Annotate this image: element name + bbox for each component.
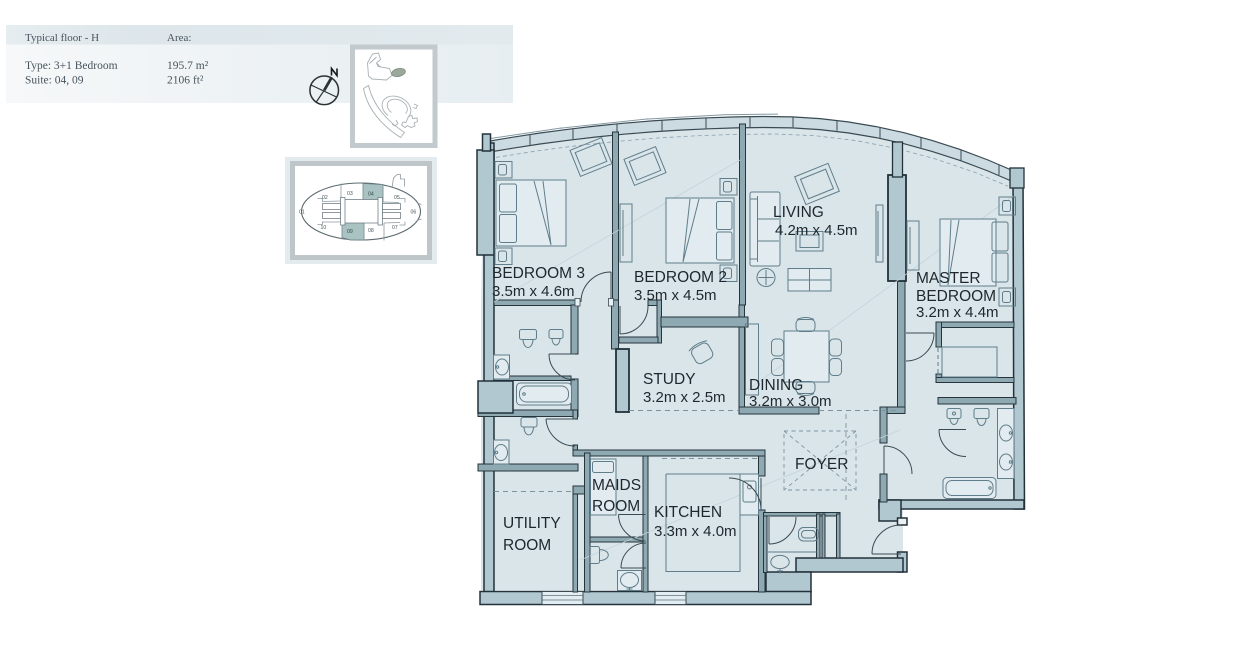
svg-text:04: 04 xyxy=(368,192,374,198)
svg-text:06: 06 xyxy=(411,210,417,216)
svg-text:LIVING: LIVING xyxy=(773,204,824,221)
svg-text:4.2m x 4.5m: 4.2m x 4.5m xyxy=(775,222,858,239)
svg-text:Area:: Area: xyxy=(167,32,191,44)
svg-text:3.2m x 4.4m: 3.2m x 4.4m xyxy=(916,304,999,321)
svg-text:BEDROOM 2: BEDROOM 2 xyxy=(634,269,727,286)
svg-text:Type: 3+1 Bedroom: Type: 3+1 Bedroom xyxy=(25,60,118,72)
svg-text:02: 02 xyxy=(322,195,328,201)
svg-text:MASTER: MASTER xyxy=(916,270,981,287)
svg-text:3.2m x 3.0m: 3.2m x 3.0m xyxy=(749,393,832,410)
svg-text:Typical floor - H: Typical floor - H xyxy=(25,32,99,44)
svg-text:3.2m x 2.5m: 3.2m x 2.5m xyxy=(643,389,726,406)
svg-text:2106 ft²: 2106 ft² xyxy=(167,75,204,87)
svg-text:3.5m x 4.5m: 3.5m x 4.5m xyxy=(634,287,717,304)
svg-text:08: 08 xyxy=(368,228,374,234)
svg-text:10: 10 xyxy=(321,225,327,231)
svg-text:195.7 m²: 195.7 m² xyxy=(167,60,209,72)
svg-text:UTILITY: UTILITY xyxy=(503,515,561,532)
svg-text:Suite: 04, 09: Suite: 04, 09 xyxy=(25,75,84,87)
svg-text:3.5m x 4.6m: 3.5m x 4.6m xyxy=(492,283,575,300)
svg-text:3.3m x 4.0m: 3.3m x 4.0m xyxy=(654,523,737,540)
svg-text:07: 07 xyxy=(392,225,398,231)
svg-text:BEDROOM: BEDROOM xyxy=(916,288,996,305)
svg-text:ROOM: ROOM xyxy=(592,498,640,515)
svg-text:05: 05 xyxy=(394,195,400,201)
svg-text:BEDROOM 3: BEDROOM 3 xyxy=(492,265,585,282)
svg-text:KITCHEN: KITCHEN xyxy=(654,504,722,521)
svg-text:MAIDS: MAIDS xyxy=(592,477,641,494)
svg-text:03: 03 xyxy=(347,191,353,197)
svg-text:01: 01 xyxy=(299,210,305,216)
svg-text:09: 09 xyxy=(347,229,353,235)
svg-text:STUDY: STUDY xyxy=(643,371,696,388)
svg-text:ROOM: ROOM xyxy=(503,537,551,554)
svg-text:DINING: DINING xyxy=(749,377,803,394)
svg-text:FOYER: FOYER xyxy=(795,456,848,473)
